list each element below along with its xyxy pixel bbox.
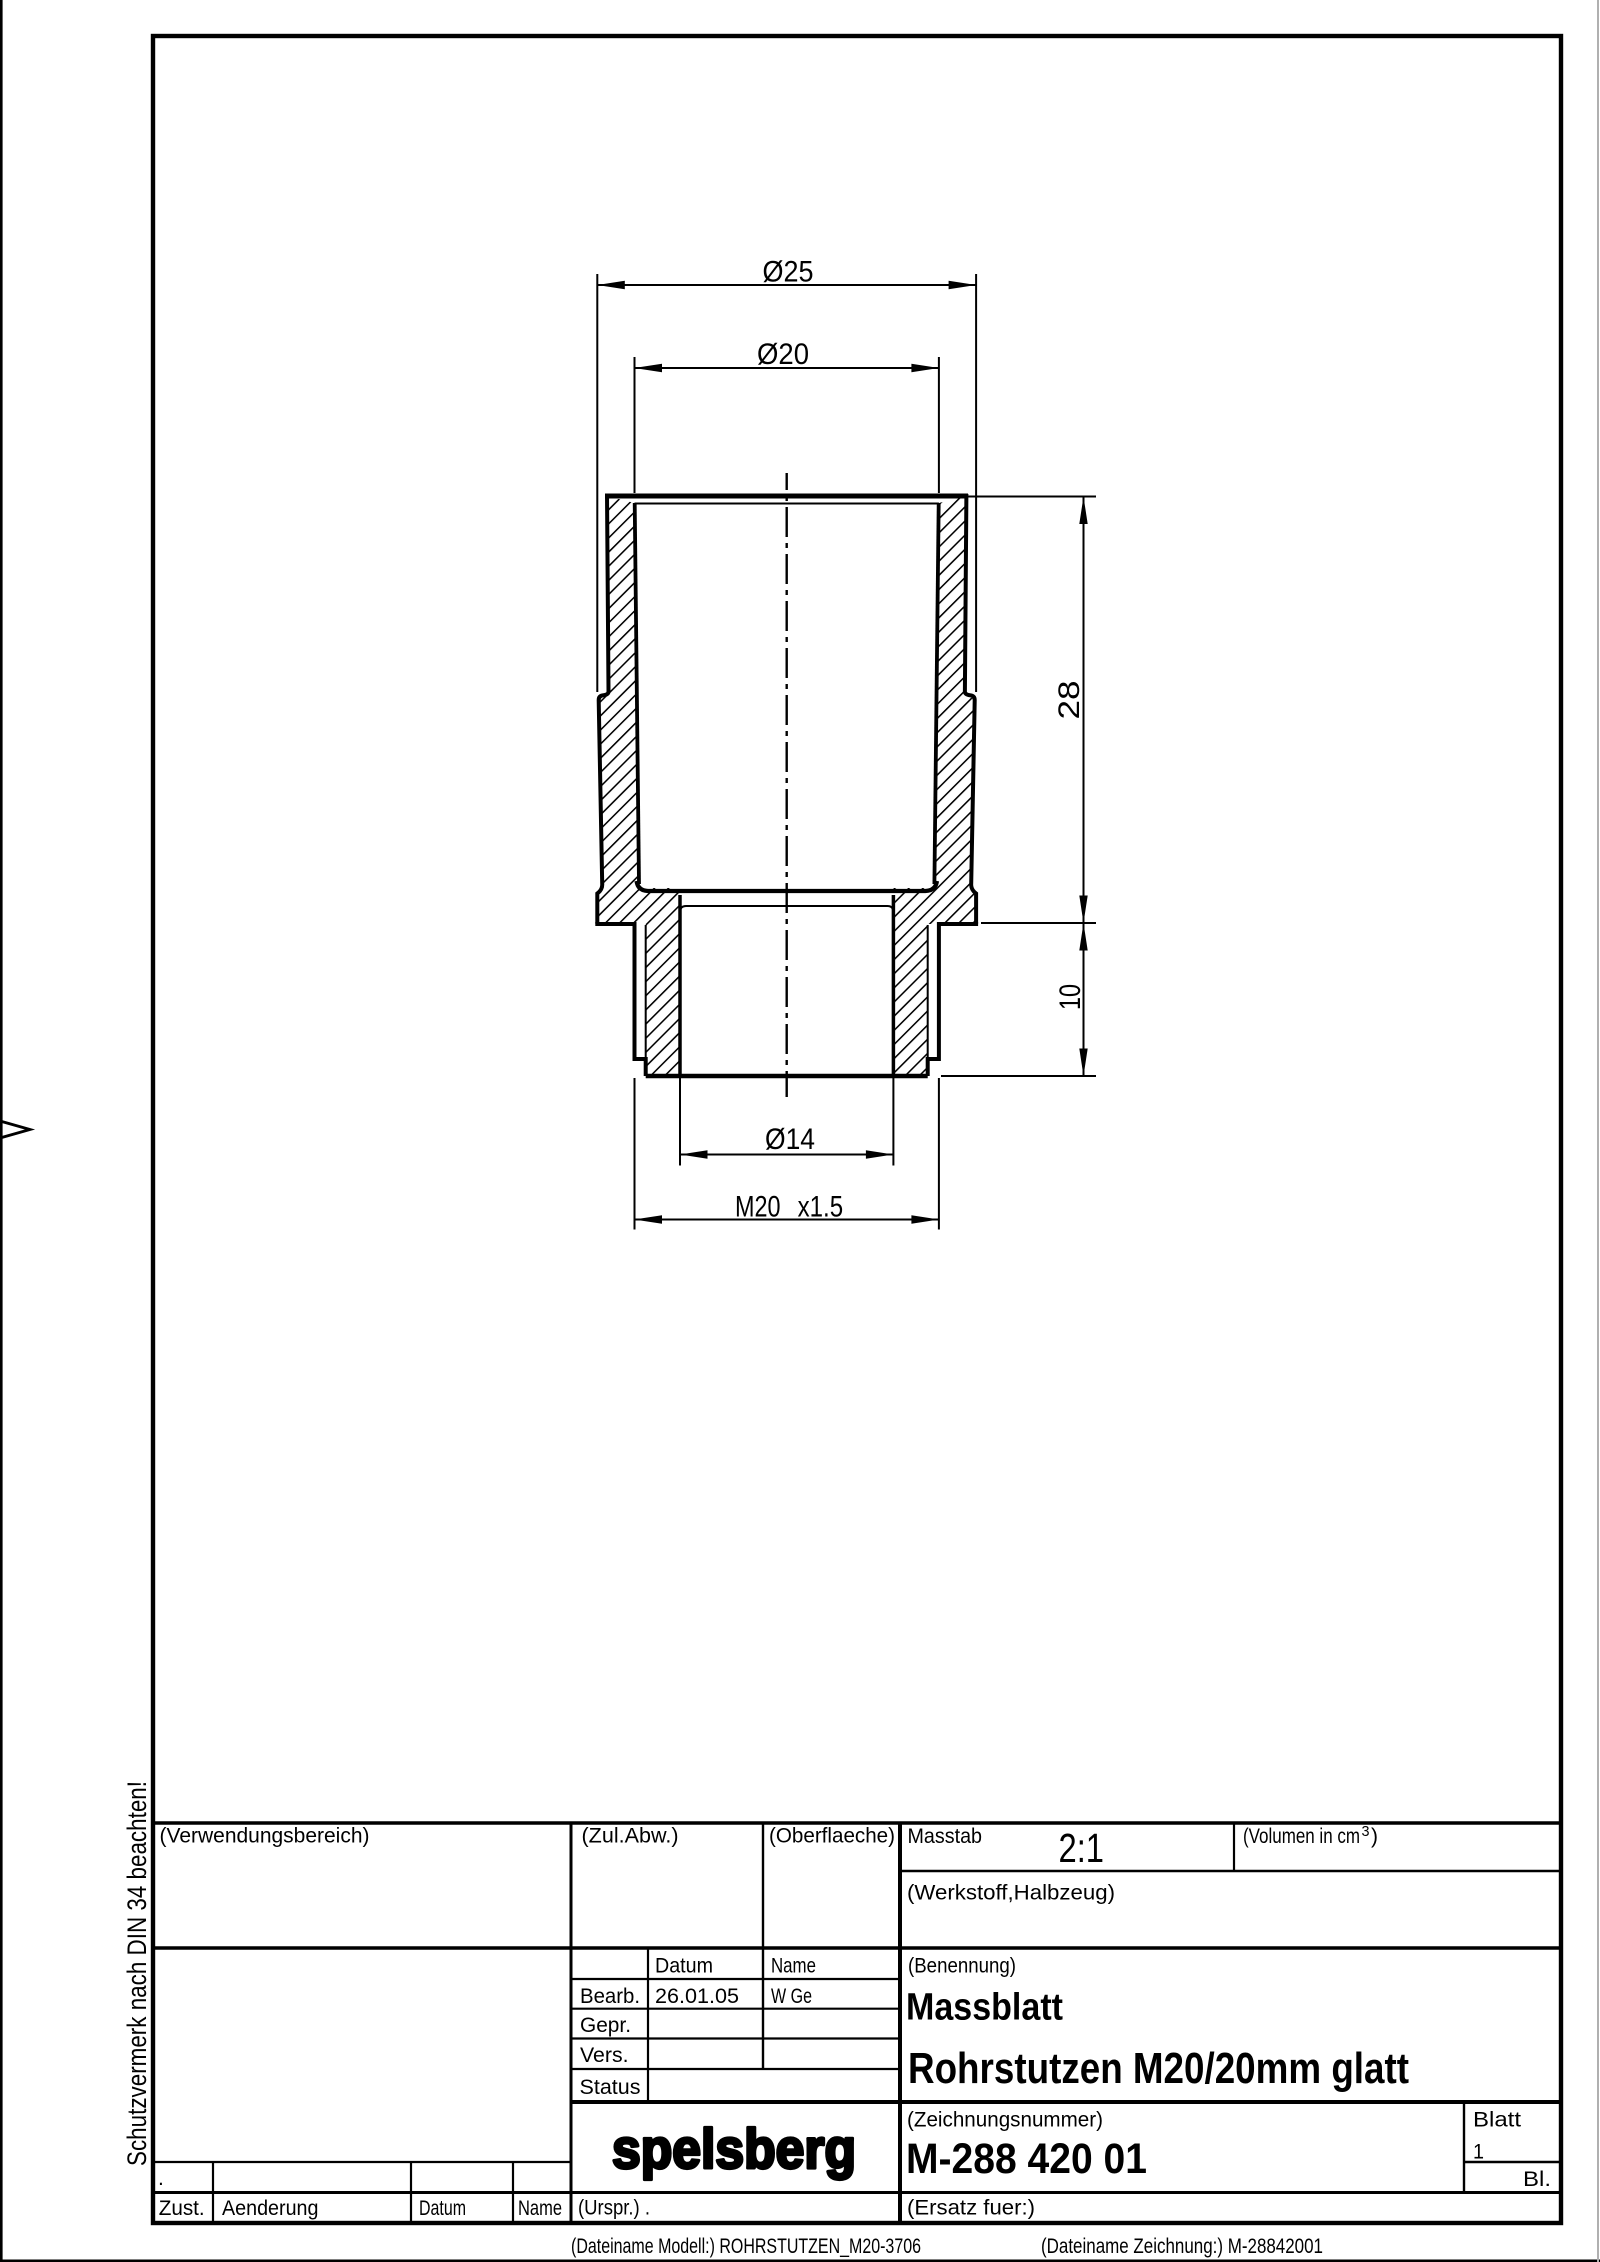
svg-text:spelsberg: spelsberg	[612, 2117, 856, 2180]
svg-text:(Ersatz fuer:): (Ersatz fuer:)	[907, 2197, 1035, 2220]
svg-text:Name: Name	[518, 2197, 562, 2220]
svg-text:2:1: 2:1	[1059, 1825, 1105, 1871]
svg-text:Blatt: Blatt	[1473, 2109, 1521, 2132]
svg-text:Name: Name	[771, 1955, 816, 1978]
svg-text:(Urspr.) .: (Urspr.) .	[578, 2197, 650, 2220]
svg-text:x1.5: x1.5	[798, 1190, 844, 1223]
svg-text:Ø14: Ø14	[765, 1123, 815, 1156]
svg-text:M-288 420 01: M-288 420 01	[906, 2135, 1147, 2183]
svg-text:28: 28	[1053, 681, 1086, 720]
svg-text:.: .	[158, 2167, 164, 2190]
svg-text:Bearb.: Bearb.	[580, 1985, 640, 2008]
svg-text:Massblatt: Massblatt	[906, 1987, 1063, 2029]
svg-text:(Verwendungsbereich): (Verwendungsbereich)	[160, 1825, 370, 1848]
svg-text:Zust.: Zust.	[159, 2197, 205, 2220]
svg-text:Gepr.: Gepr.	[580, 2014, 631, 2037]
svg-text:3: 3	[1362, 1823, 1370, 1840]
svg-text:1: 1	[1473, 2141, 1484, 2164]
svg-text:M20: M20	[735, 1190, 781, 1223]
svg-text:Ø20: Ø20	[757, 338, 809, 371]
svg-text:): )	[1371, 1825, 1378, 1848]
svg-text:(Werkstoff,Halbzeug): (Werkstoff,Halbzeug)	[907, 1882, 1115, 1905]
svg-text:26.01.05: 26.01.05	[655, 1985, 739, 2008]
svg-text:Vers.: Vers.	[580, 2044, 629, 2067]
svg-text:(Dateiname Zeichnung:) M-28842: (Dateiname Zeichnung:) M-28842001	[1041, 2235, 1323, 2258]
svg-text:Datum: Datum	[655, 1955, 713, 1978]
svg-text:(Zeichnungsnummer): (Zeichnungsnummer)	[907, 2109, 1103, 2132]
svg-text:Status: Status	[580, 2076, 641, 2099]
svg-text:Ø25: Ø25	[763, 255, 814, 288]
svg-text:Aenderung: Aenderung	[222, 2197, 319, 2220]
svg-text:Datum: Datum	[419, 2197, 466, 2220]
svg-text:(Volumen in cm: (Volumen in cm	[1243, 1825, 1360, 1848]
svg-text:Masstab: Masstab	[908, 1825, 983, 1848]
svg-text:(Oberflaeche): (Oberflaeche)	[769, 1825, 895, 1848]
svg-text:(Benennung): (Benennung)	[908, 1955, 1016, 1978]
svg-text:(Dateiname Modell:) ROHRSTUTZE: (Dateiname Modell:) ROHRSTUTZEN_M20-3706	[571, 2235, 921, 2258]
svg-text:W Ge: W Ge	[771, 1985, 812, 2008]
svg-text:(Zul.Abw.): (Zul.Abw.)	[582, 1825, 679, 1848]
svg-text:Rohrstutzen M20/20mm glatt: Rohrstutzen M20/20mm glatt	[908, 2044, 1409, 2093]
svg-text:Bl.: Bl.	[1523, 2168, 1551, 2191]
svg-text:Schutzvermerk nach DIN 34 beac: Schutzvermerk nach DIN 34 beachten!	[122, 1781, 152, 2166]
svg-text:10: 10	[1054, 984, 1087, 1010]
